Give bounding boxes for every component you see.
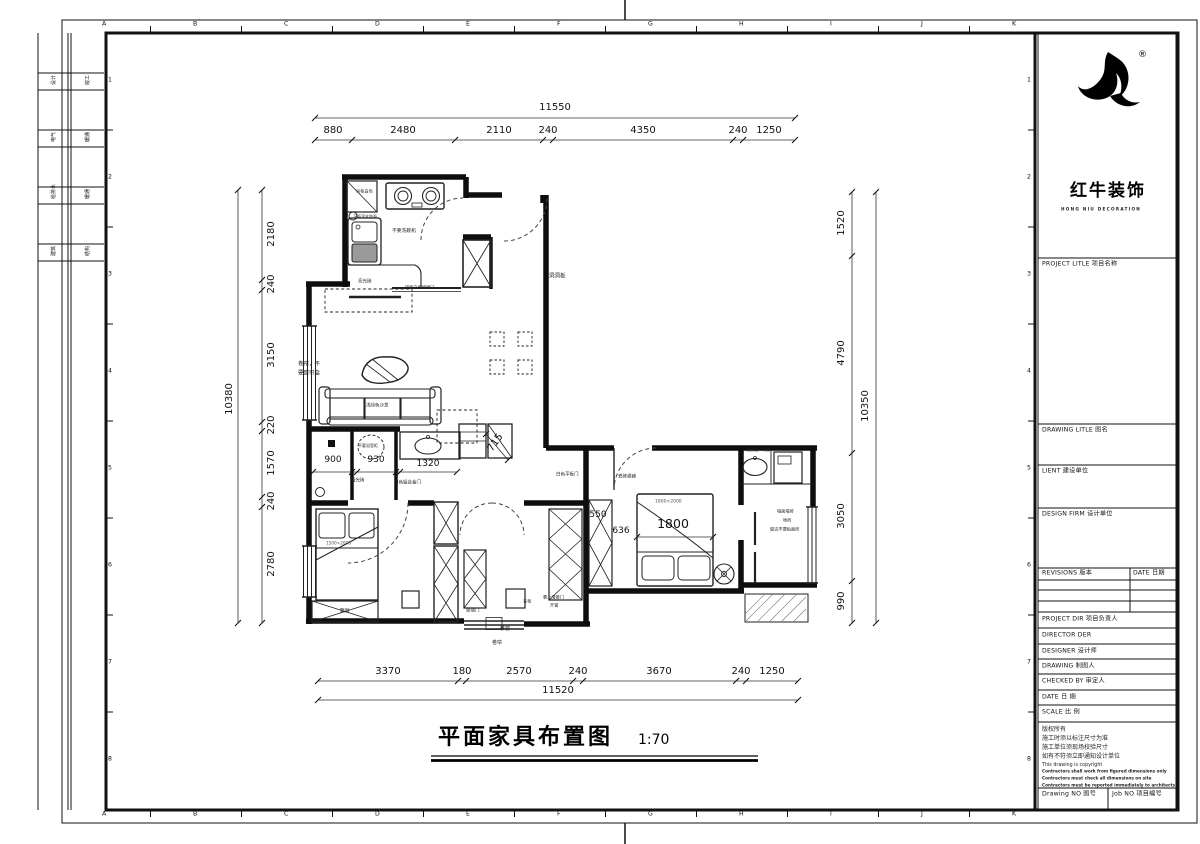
ruler-number-left: 3 — [108, 271, 112, 277]
brand-subtitle: HONG NIU DECORATION — [1061, 207, 1141, 212]
dim-left-seg: 3150 — [267, 333, 277, 377]
tb-note-cn-4: 如有不符须立即通知设计单位 — [1042, 753, 1120, 760]
tb-project-label: PROJECT LITLE 项目名称 — [1042, 261, 1117, 267]
stamp-label: 暖通 — [86, 134, 91, 142]
dim-right-total: 10350 — [861, 378, 871, 434]
dim-top-seg: 2110 — [479, 126, 519, 136]
dim-gap: 636 — [606, 527, 636, 536]
label-no-curtain-2: 要窗帘盒 — [298, 370, 320, 376]
tb-note-en-4: Contractors must be reported immediately… — [1042, 783, 1175, 788]
master-bath-fixtures — [741, 450, 813, 622]
label-alu-door: 白色铝合金门 — [394, 480, 421, 485]
label-bath-floor-tile: 地砖 — [783, 518, 791, 523]
tb-scale-label: SCALE 比 例 — [1042, 709, 1080, 715]
sheet-border — [38, 0, 1197, 844]
plan-title-underline — [431, 756, 758, 761]
stamp-label: 暖通 — [86, 191, 91, 199]
label-glass-door: 玻璃门 — [466, 608, 480, 613]
label-kitchen-wood: 下面顶木饰面 — [353, 215, 377, 220]
label-tiles-throughout: 瓷砖通铺 — [618, 474, 636, 479]
ruler-letter-bottom: E — [466, 811, 470, 817]
dim-right-seg: 1520 — [837, 201, 847, 245]
dim-left-total: 10380 — [225, 371, 235, 427]
tb-note-en-2: Contractors shall work from figured dime… — [1042, 769, 1167, 774]
tb-checked-by-label: CHECKED BY 审定人 — [1042, 678, 1105, 684]
dim-bed-width: 1800 — [645, 518, 701, 531]
plan-title: 平面家具布置图 — [438, 727, 613, 749]
bedroom3-furniture — [464, 509, 582, 608]
label-no-dishwasher: 不要洗碗机 — [392, 228, 416, 234]
ruler-letter-bottom: I — [830, 811, 832, 817]
stamp-label: 电气 — [52, 134, 57, 142]
tb-note-en-3: Contractors must check all dimensions on… — [1042, 776, 1151, 781]
ruler-letter-bottom: D — [375, 811, 380, 817]
ruler-number-right: 8 — [1027, 756, 1031, 762]
label-bath-no-tile: 窗边不要贴面砖 — [770, 527, 799, 532]
ruler-number-left: 5 — [108, 465, 112, 471]
door-arcs — [348, 198, 656, 563]
ruler-letter-top: F — [557, 21, 561, 27]
label-bay-window: 飘窗 — [340, 608, 350, 614]
tb-note-en-1: This drawing is copyright — [1042, 762, 1102, 768]
dim-top-seg: 4350 — [623, 126, 663, 136]
dim-bed2-size: 1500×2000 — [326, 541, 351, 546]
ruler-letter-top: K — [1012, 21, 1016, 27]
label-sofa: 浅绿色沙发 — [366, 403, 389, 408]
tb-designer-label: DESIGNER 设计师 — [1042, 648, 1097, 654]
tb-drawing-by-label: DRAWING 制图人 — [1042, 663, 1095, 669]
ruler-number-right: 2 — [1027, 174, 1031, 180]
ruler-letter-bottom: J — [921, 811, 923, 817]
furniture — [312, 181, 813, 622]
tb-job-no-label: Job NO 项目编号 — [1112, 791, 1162, 797]
ruler-letter-top: I — [830, 21, 832, 27]
ruler-letter-top: A — [102, 21, 106, 27]
stamp-label: 建筑 — [52, 248, 57, 256]
label-kitchen-glass-door: 墙砖白色玻璃门 — [405, 285, 434, 290]
walls — [306, 177, 817, 624]
tb-project-dir-label: PROJECT DIR 项目负责人 — [1042, 616, 1118, 622]
dim-top-seg: 2480 — [383, 126, 423, 136]
dim-left-seg: 240 — [267, 479, 277, 523]
tb-note-cn-2: 施工时须以标注尺寸为准 — [1042, 735, 1108, 742]
bedroom2-furniture — [312, 502, 458, 622]
drawing-sheet: 11550 880 2480 2110 240 4350 240 1250 33… — [0, 0, 1200, 844]
bull-logo — [1078, 52, 1140, 106]
ruler-letter-bottom: G — [648, 811, 653, 817]
tb-drawing-title-label: DRAWING LITLE 图名 — [1042, 427, 1108, 433]
ruler-letter-bottom: A — [102, 811, 106, 817]
tb-note-cn-1: 版权所有 — [1042, 726, 1066, 733]
ruler-number-right: 1 — [1027, 77, 1031, 83]
dim-top-seg: 880 — [313, 126, 353, 136]
living-room-furniture — [319, 289, 532, 443]
dim-toilet: 900 — [315, 456, 351, 465]
ruler-number-right: 7 — [1027, 659, 1031, 665]
ruler-letter-bottom: K — [1012, 811, 1016, 817]
ruler-number-right: 3 — [1027, 271, 1031, 277]
dim-left-seg: 2180 — [267, 212, 277, 256]
ruler-letter-top: E — [466, 21, 470, 27]
sheet-linework — [0, 0, 1200, 844]
dimension-lines — [235, 115, 879, 703]
tb-drawing-no-label: Drawing NO 图号 — [1042, 791, 1096, 797]
ruler-letter-top: G — [648, 21, 653, 27]
brand-name: 红牛装饰 — [1060, 183, 1156, 200]
ruler-letter-top: J — [921, 21, 923, 27]
label-no-bath-cabinet: 不要浴室柜 — [358, 444, 378, 449]
dim-top-total: 11550 — [525, 103, 585, 113]
tb-design-firm-label: DESIGN FIRM 设计单位 — [1042, 511, 1113, 517]
ruler-letter-bottom: H — [739, 811, 744, 817]
stamp-label: 给排水 — [52, 191, 57, 199]
label-white-flat-door: 白色平板门 — [556, 472, 579, 477]
ruler-letter-top: H — [739, 21, 744, 27]
ruler-letter-bottom: C — [284, 811, 288, 817]
registered-mark-icon: ® — [1138, 51, 1147, 60]
ruler-number-left: 8 — [108, 756, 112, 762]
label-pegboard: 洞洞板 — [549, 273, 566, 279]
dim-bed-size: 1800×2000 — [655, 499, 682, 504]
ruler-letter-top: D — [375, 21, 380, 27]
ruler-number-left: 7 — [108, 659, 112, 665]
dim-bottom-seg: 240 — [558, 667, 598, 677]
label-bath-wall-tile: 墙面墙砖 — [777, 509, 794, 514]
dim-wardrobe: 550 — [584, 511, 612, 520]
ruler-number-left: 2 — [108, 174, 112, 180]
ruler-number-left: 6 — [108, 562, 112, 568]
dim-vanity: 1320 — [410, 460, 446, 469]
label-no-curtain-1: 卷帘，不 — [298, 361, 320, 367]
ruler-number-left: 1 — [108, 77, 112, 83]
ruler-letter-top: B — [193, 21, 197, 27]
dim-bottom-total: 11520 — [528, 686, 588, 696]
tb-note-cn-3: 施工单位须现场校验尺寸 — [1042, 744, 1108, 751]
ruler-number-right: 4 — [1027, 368, 1031, 374]
tb-date-label: DATE 日 期 — [1042, 694, 1076, 700]
tb-date-col-label: DATE 日期 — [1133, 570, 1165, 576]
ruler-letter-bottom: F — [557, 811, 561, 817]
tb-revisions-label: REVISIONS 版本 — [1042, 570, 1092, 576]
dim-right-seg: 4790 — [837, 331, 847, 375]
dim-bottom-seg: 1250 — [752, 667, 792, 677]
dim-shower: 930 — [358, 456, 394, 465]
dim-left-seg: 240 — [267, 262, 277, 306]
ruler-number-left: 4 — [108, 368, 112, 374]
plan-scale: 1:70 — [638, 733, 669, 747]
label-sliding-window: 移窗 — [500, 626, 510, 632]
dim-right-seg: 990 — [837, 579, 847, 623]
label-window-height: 注意窗户高度 — [746, 448, 770, 453]
ruler-number-right: 5 — [1027, 465, 1031, 471]
label-matte-tile: 哑光砖 — [351, 478, 365, 483]
label-open-window: 开窗 — [550, 603, 558, 608]
dim-right-seg: 3050 — [837, 494, 847, 538]
tb-client-label: LIENT 建设单位 — [1042, 468, 1088, 474]
label-kitchen-cabinet: 吊柜白色 — [356, 189, 373, 194]
dim-bottom-seg: 3370 — [368, 667, 408, 677]
dim-left-seg: 2780 — [267, 542, 277, 586]
tb-director-label: DIRECTOR DER — [1042, 632, 1091, 638]
dim-top-seg: 240 — [528, 126, 568, 136]
dim-top-seg: 1250 — [749, 126, 789, 136]
dim-bottom-seg: 180 — [442, 667, 482, 677]
stamp-label: 结构 — [86, 248, 91, 256]
label-sliding-door: 靠上滑推门 — [543, 595, 564, 600]
stamp-label: 竣工 — [86, 77, 91, 85]
label-roller-blind: 卷帘 — [492, 640, 502, 646]
ruler-letter-top: C — [284, 21, 288, 27]
stamp-label: 设计 — [52, 77, 57, 85]
label-kitchen-tile: 亮光砖 — [358, 279, 372, 284]
ruler-number-right: 6 — [1027, 562, 1031, 568]
dim-bottom-seg: 3670 — [639, 667, 679, 677]
dim-bottom-seg: 2570 — [499, 667, 539, 677]
label-wardrobe: 衣柜 — [523, 599, 531, 604]
ruler-letter-bottom: B — [193, 811, 197, 817]
